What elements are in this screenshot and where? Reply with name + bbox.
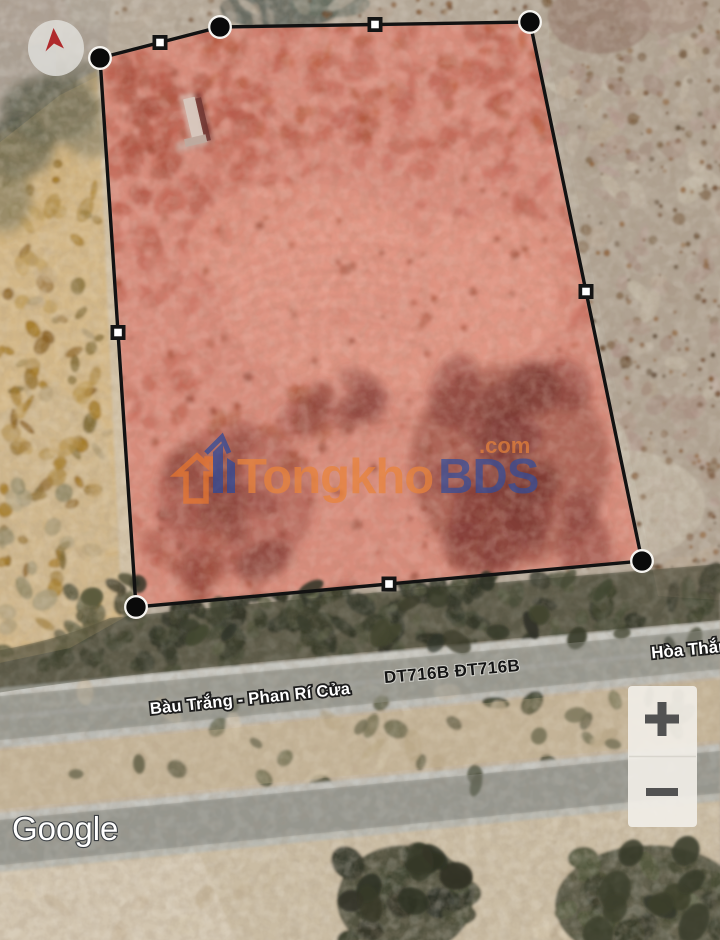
- svg-text:.com: .com: [479, 433, 530, 458]
- svg-text:Google: Google: [12, 810, 118, 847]
- svg-text:Tongkho: Tongkho: [237, 450, 433, 504]
- svg-text:BDS: BDS: [438, 450, 538, 504]
